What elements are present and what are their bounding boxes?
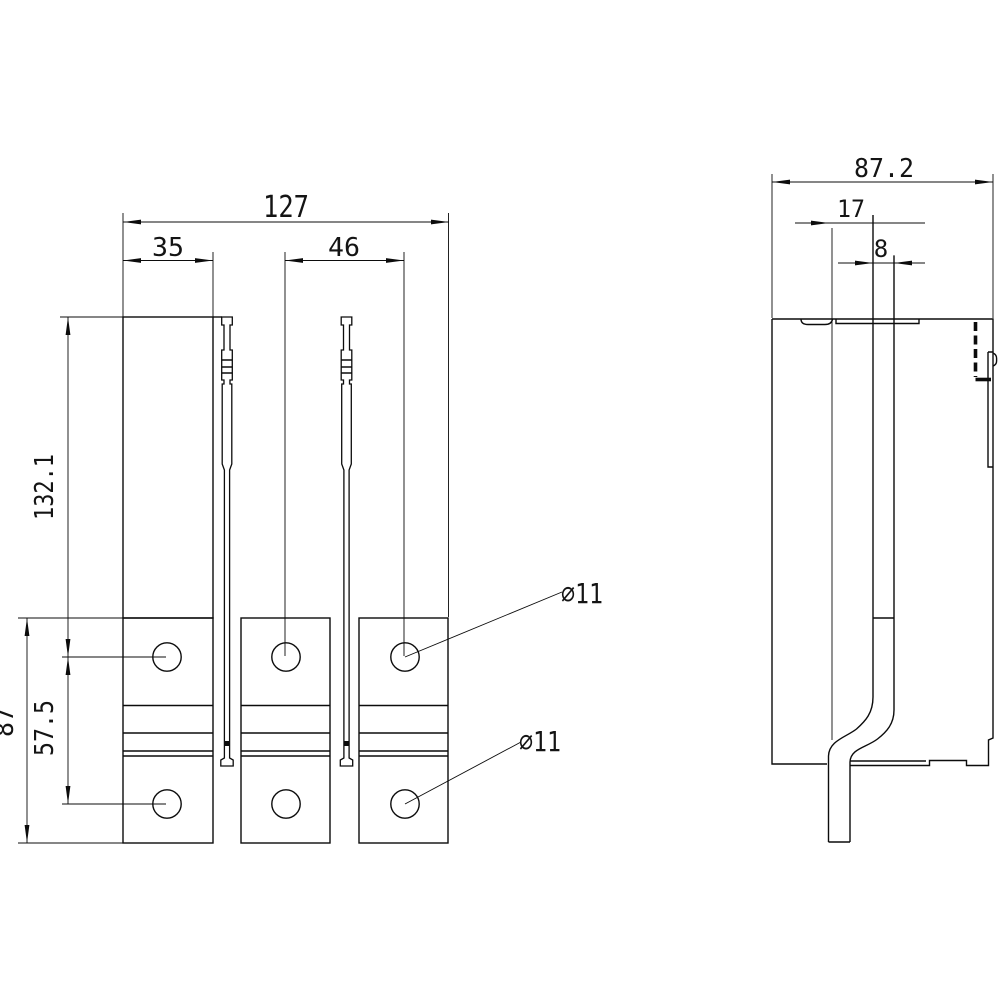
leader-upper-hole <box>405 592 562 657</box>
label-lower-hole-diameter: ⌀11 <box>519 725 561 758</box>
dim-17-arrow <box>811 221 829 226</box>
terminal-block-left <box>123 618 213 843</box>
dim-132-label: 132.1 <box>30 454 60 520</box>
dim-46-label: 46 <box>328 233 360 263</box>
dim-872-label: 87.2 <box>854 154 914 184</box>
side-body-outline <box>772 319 993 766</box>
dim-87-label: 87 <box>0 707 20 737</box>
drawing-canvas: 127 35 46 132.1 57.5 87 <box>0 0 1000 1000</box>
hole-top-middle <box>272 643 300 671</box>
din-clip-channel <box>988 352 993 467</box>
terminal-block-right <box>359 618 448 843</box>
side-top-tray-notch <box>801 319 833 325</box>
dimension-blade-thickness: 8 <box>838 235 925 710</box>
dim-8-label: 8 <box>874 235 888 263</box>
dim-575-label: 57.5 <box>30 700 60 756</box>
dim-127-lines <box>123 213 449 617</box>
callout-lower-hole-diameter: ⌀11 <box>405 725 561 804</box>
dimension-pole-width: 35 <box>123 233 213 317</box>
side-view: 87.2 17 8 <box>772 154 997 842</box>
terminal-block-groove-lines <box>123 706 448 757</box>
dim-127-label: 127 <box>263 190 309 225</box>
label-upper-hole-diameter: ⌀11 <box>561 577 603 610</box>
blade-left-edge <box>829 215 874 842</box>
busbar-right <box>340 317 352 766</box>
technical-drawing: 127 35 46 132.1 57.5 87 <box>0 0 1000 1000</box>
terminal-block-middle <box>241 618 330 843</box>
upper-body-outline <box>123 317 213 618</box>
dimension-hole-spacing: 57.5 <box>30 657 70 804</box>
hole-bottom-middle <box>272 790 300 818</box>
front-view: 127 35 46 132.1 57.5 87 <box>0 190 603 843</box>
dimension-block-height: 87 <box>0 618 123 843</box>
dimension-blade-offset: 17 <box>795 195 925 225</box>
busbar-left <box>221 317 233 766</box>
dim-35-label: 35 <box>152 233 184 263</box>
dim-17-label: 17 <box>837 195 865 223</box>
blade-right-edge <box>850 256 894 842</box>
dim-132-lines <box>60 317 166 804</box>
callout-upper-hole-diameter: ⌀11 <box>405 577 603 657</box>
